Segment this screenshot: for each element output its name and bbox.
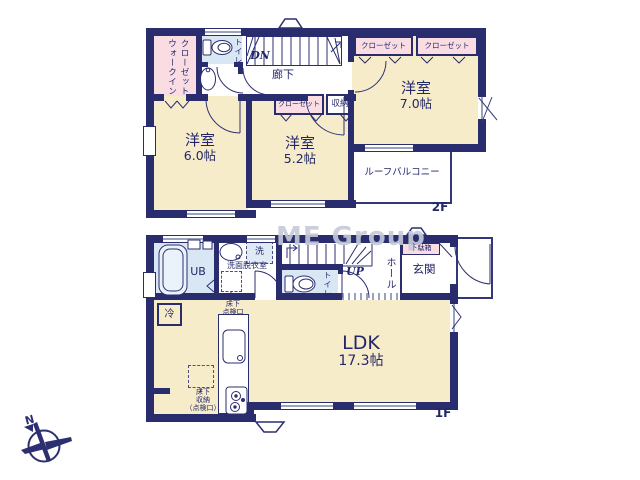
stairs-dn-label: DN (249, 50, 271, 64)
window (280, 403, 334, 409)
wall (154, 388, 170, 394)
underfloor-access-line2: 点検口 (213, 309, 253, 317)
window (143, 126, 156, 156)
room-name: 洋室 (371, 80, 461, 97)
fridge-box: 冷 (157, 303, 182, 326)
washroom-label: 洗面脱衣室 (218, 262, 276, 273)
wall (282, 264, 342, 270)
compass-icon: N (21, 413, 72, 462)
toilet-2f-label: トイレ (229, 37, 242, 65)
wall (146, 414, 256, 422)
window (246, 236, 276, 242)
room-size: 7.0帖 (371, 97, 461, 111)
underfloor-storage-line3: （点検口） (182, 405, 224, 413)
unit-bath-label: UB (184, 266, 212, 280)
room-52-label: 洋室 5.2帖 (257, 135, 343, 177)
wall (478, 28, 486, 152)
window (478, 96, 486, 120)
wall (246, 402, 458, 410)
vent-marker-1f-bottom (256, 422, 284, 432)
room-size: 5.2帖 (257, 152, 343, 166)
washbasin-2f-icon (201, 68, 216, 90)
floor1-label: 1F (430, 407, 456, 421)
wall (146, 28, 154, 218)
walk-in-closet-line1: ウォークイン (166, 38, 176, 96)
closet-label: クローゼット (278, 101, 320, 109)
closet-label: クローゼット (425, 42, 470, 50)
wall (246, 402, 254, 422)
walk-in-closet-line2: クローゼット (179, 38, 189, 96)
floor2-label: 2F (426, 201, 454, 216)
window (143, 272, 156, 298)
wall (146, 293, 255, 300)
washbasin-1f-icon (220, 244, 242, 261)
room-name: 洋室 (158, 132, 242, 149)
washer-label: 洗 (255, 247, 264, 257)
wall (246, 96, 252, 208)
wall (282, 293, 342, 300)
roof-balcony-label: ルーフバルコニー (352, 168, 452, 181)
room-size: 6.0帖 (158, 149, 242, 163)
fridge-label: 冷 (165, 309, 175, 320)
toilet-1f-label: トイレ (318, 271, 331, 298)
hallway-label: 廊下 (265, 69, 301, 83)
window (186, 211, 236, 217)
entrance-label: 玄関 (405, 263, 443, 278)
room-size: 17.3帖 (320, 354, 402, 370)
underfloor-storage-box (188, 365, 214, 388)
ldk-label: LDK 17.3帖 (320, 333, 402, 377)
wall (348, 36, 354, 62)
compass-north-label: N (24, 413, 36, 428)
room-name: 洋室 (257, 135, 343, 152)
closet-box-top-left: クローゼット (354, 36, 413, 56)
wall (338, 264, 343, 274)
underfloor-access-label: 床下 点検口 (213, 301, 253, 318)
underfloor-storage-label: 床下 収納 （点検口） (182, 389, 224, 414)
window (364, 145, 414, 151)
window (204, 29, 242, 35)
room-name: LDK (320, 333, 402, 354)
wall (146, 235, 154, 422)
window (162, 236, 204, 242)
closet-label: クローゼット (361, 42, 406, 50)
hall-label: ホール (378, 250, 395, 296)
floor-plan: クローゼット クローゼット クローゼット 収納 ウォークイン クローゼット トイ… (0, 0, 640, 480)
vent-marker-2f (279, 19, 302, 28)
wall (238, 94, 308, 101)
storage-label: 収納 (331, 100, 348, 110)
walk-in-closet-label: ウォークイン クローゼット (158, 38, 196, 96)
watermark: ME Group (276, 222, 426, 252)
stairs-up-label: UP (344, 266, 366, 279)
underfloor-access-box (221, 271, 242, 292)
entrance-porch (456, 237, 493, 299)
wall (344, 94, 356, 101)
window (450, 303, 458, 333)
wall (400, 293, 458, 300)
window (353, 403, 417, 409)
wall (450, 235, 458, 247)
room-6-label: 洋室 6.0帖 (158, 132, 242, 174)
closet-box-top-right: クローゼット (416, 36, 478, 56)
window (270, 201, 326, 207)
wall (200, 62, 208, 67)
room-7-label: 洋室 7.0帖 (371, 80, 461, 122)
